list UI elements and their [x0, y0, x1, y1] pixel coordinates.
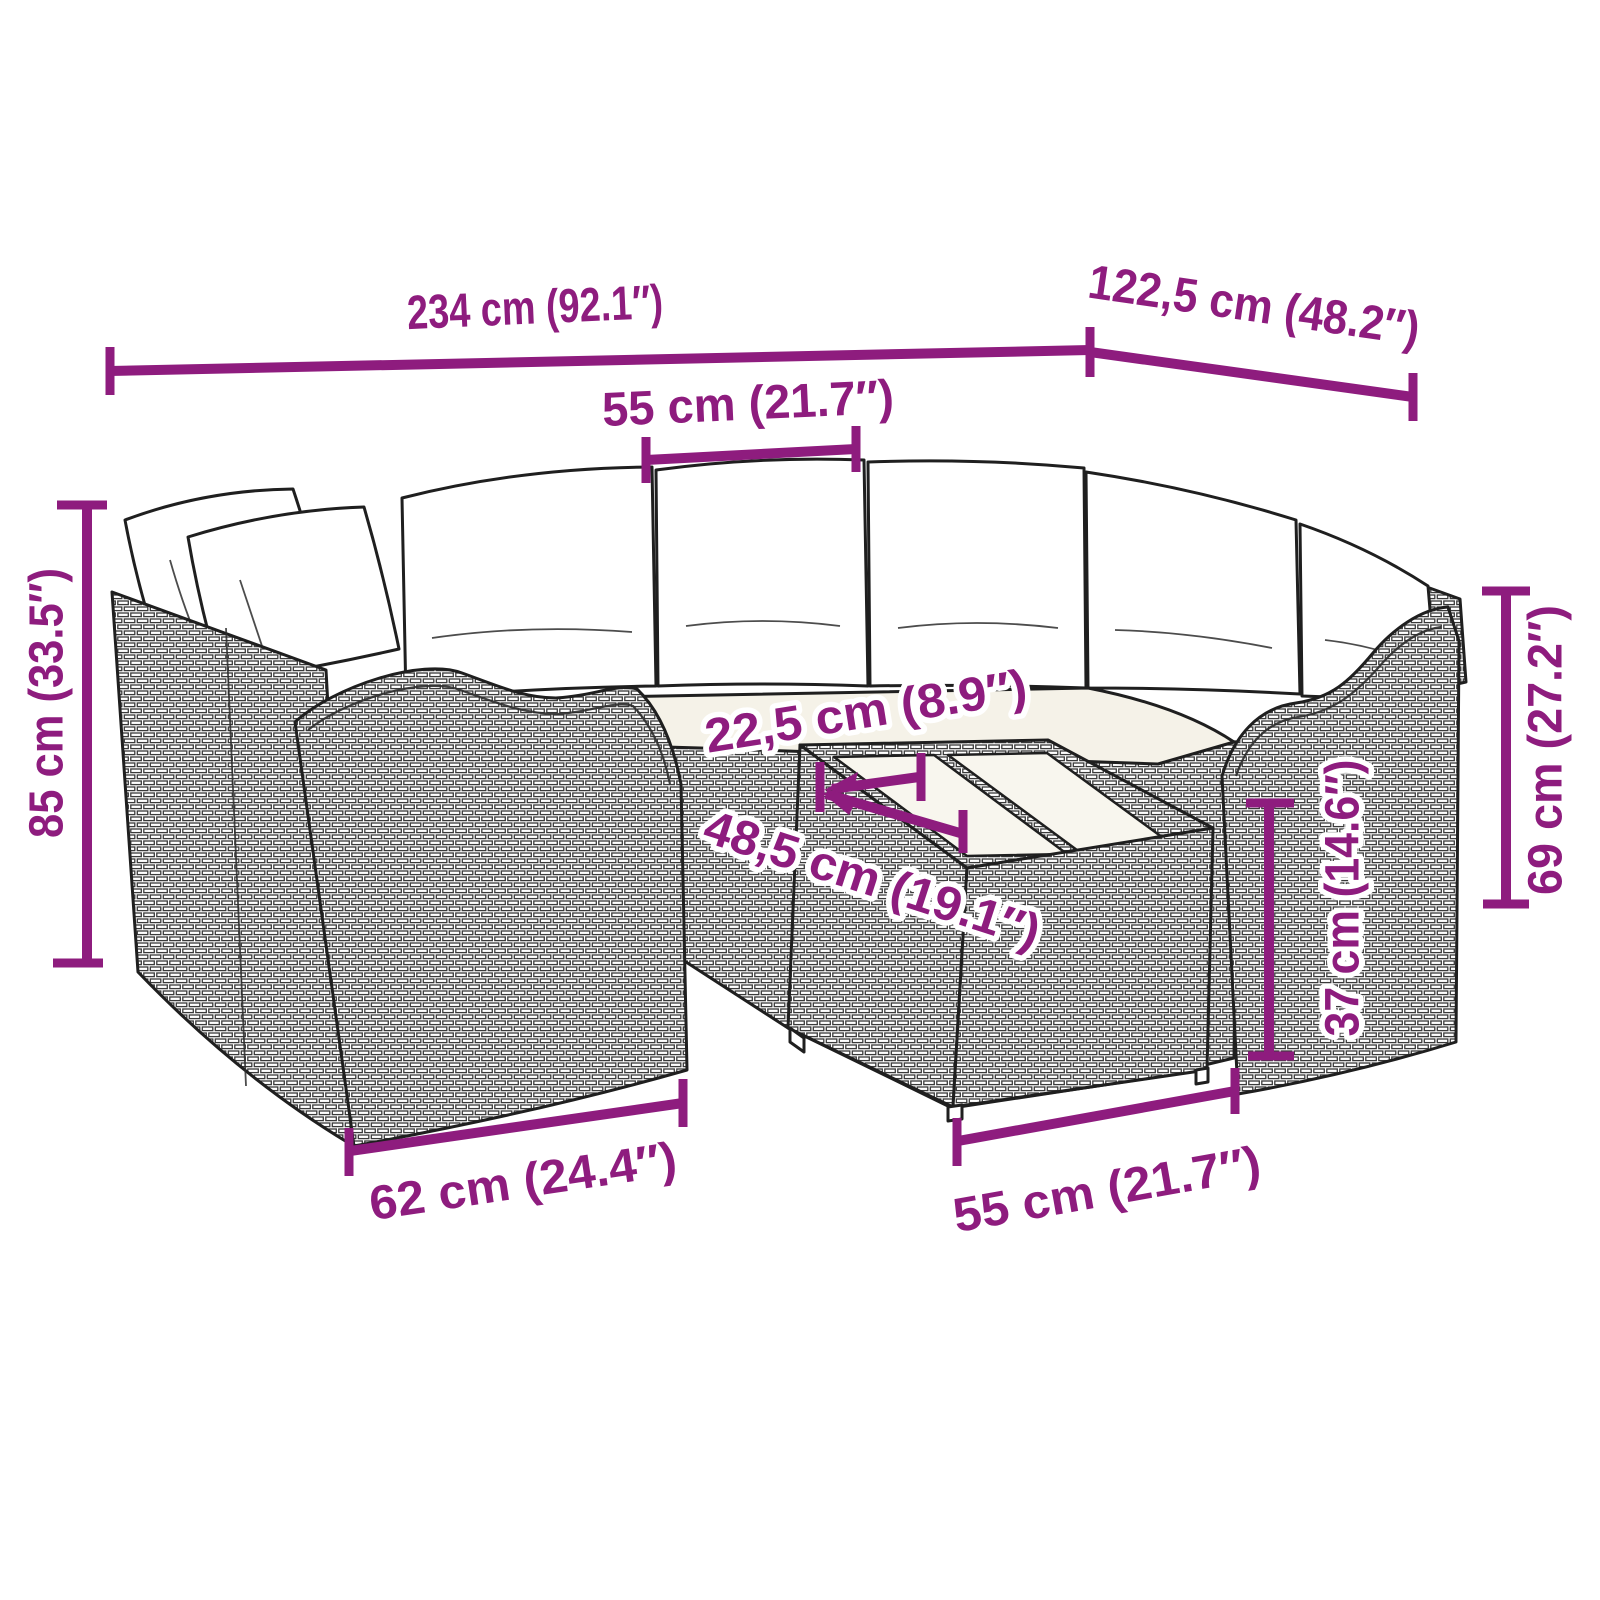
dimension-label-table-height: 37 cm (14.6″)	[1317, 760, 1370, 1037]
dimension-label-arm-height: 69 cm (27.2″)	[1520, 605, 1573, 895]
dimension-label-side-panel-depth: 62 cm (24.4″)	[366, 1133, 680, 1231]
dimension-label-back-cushion-width: 55 cm (21.7″)	[601, 371, 895, 437]
product-dimension-diagram: 234 cm (92.1″) 122,5 cm (48.2″) 55 cm (2…	[0, 0, 1600, 1600]
left-armrest	[295, 669, 687, 1146]
back-cushion-2	[402, 467, 656, 700]
dimension-overall-height: 85 cm (33.5″)	[21, 505, 108, 963]
table-foot	[1196, 1068, 1208, 1084]
dimension-overall-depth: 122,5 cm (48.2″)	[1085, 256, 1423, 421]
dimension-label-overall-width: 234 cm (92.1″)	[406, 276, 664, 340]
dimension-overall-width: 234 cm (92.1″)	[110, 276, 1090, 395]
back-cushion-5	[1086, 472, 1300, 694]
back-cushion-3	[656, 459, 868, 686]
dimension-arm-height: 69 cm (27.2″)	[1482, 591, 1573, 904]
back-cushion-4	[868, 461, 1086, 688]
diagram-canvas: 234 cm (92.1″) 122,5 cm (48.2″) 55 cm (2…	[0, 0, 1600, 1600]
dimension-label-table-width: 55 cm (21.7″)	[949, 1137, 1264, 1243]
dimension-label-overall-depth: 122,5 cm (48.2″)	[1085, 256, 1423, 357]
table-right-face	[953, 828, 1213, 1107]
dimension-label-overall-height: 85 cm (33.5″)	[21, 568, 74, 838]
